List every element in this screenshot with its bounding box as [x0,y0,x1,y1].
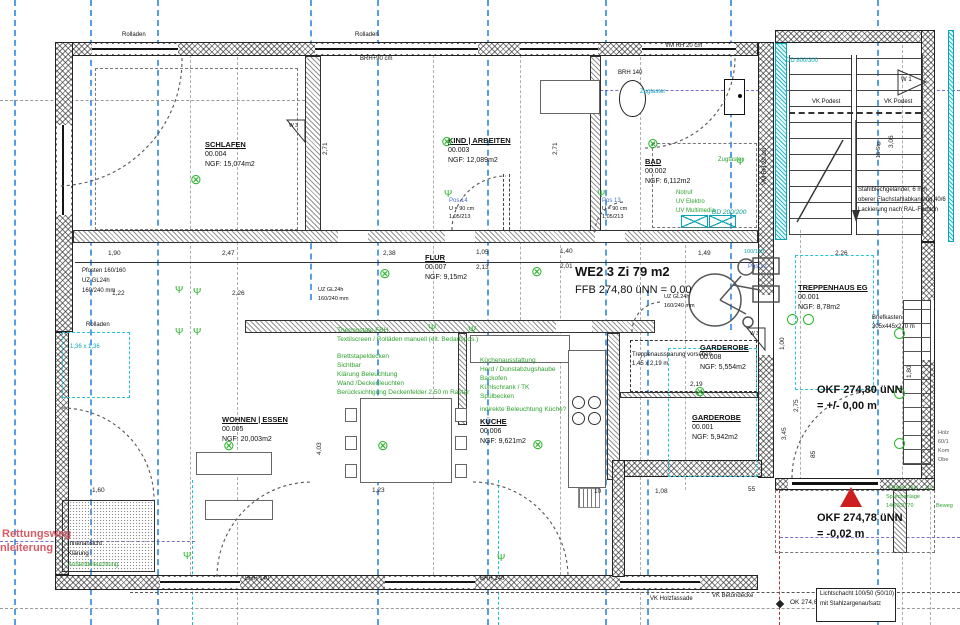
ceiling-lamp-icon: ⊗ [694,384,706,398]
desk [540,80,600,114]
note-decke5: Berücksichtigung Deckenfelder 2,50 m Ras… [337,388,469,397]
okf-lower-2: = -0,02 m [817,528,864,541]
dim: 2,38 [383,250,396,257]
ceiling-lamp-icon: ⊗ [531,264,543,278]
dim: 2,13 [476,264,489,271]
note-zugtaster-1: Zugtaster [640,88,665,97]
dimension-line [75,262,758,263]
hob-ring [588,396,601,409]
dining-table [360,398,452,483]
brh140-label: BRH 140 [618,70,642,77]
note-pfosten1: Pfosten 160/160 [82,268,126,275]
note-fbh2: Textilscreen / Rolläden manuell (elt. Be… [337,335,478,344]
room-num: 00.001 [798,294,819,302]
room-name-garderobe1: GARDEROBE [692,413,741,422]
room-ngf: NGF: 9,15m2 [425,274,467,282]
shaft-dim: 1,36 x 1,36 [70,344,100,351]
switch-icon: Ψ [497,554,505,564]
vanity [724,79,745,115]
chair [455,464,467,478]
dim: 1,08 [655,488,668,495]
door-pos-sub: 1,05/213 [602,214,623,221]
note-decke4: Wand /Deckenleuchten [337,379,404,388]
switch-icon: Ψ [175,286,183,296]
window [57,125,71,215]
dim: 1,22 [112,290,125,297]
note-holz4: Obe [938,457,948,464]
grid-axis [487,0,489,625]
note-beweg: Beweg [936,503,953,511]
note-kueche3: Backofen [480,374,507,383]
dim-vertical: 1,80 [906,365,913,378]
door-pos-tag: Pos 12 [748,264,767,271]
dim: 1,60 [92,487,105,494]
room-num: 00.005 [222,426,243,434]
room-num: 00.004 [205,151,226,159]
note-kueche4: Kühlschrank / TK [480,383,529,392]
switch-icon: Ψ [183,552,191,562]
note-aussparung1: Treppenaussparung vorsehen [632,352,712,359]
centerline [433,55,434,575]
rescue-line1: Rettungsweg [2,528,71,541]
switch-icon: Ψ [193,328,201,338]
door-gap [595,231,625,242]
chair [345,464,357,478]
note-uz1a: UZ GL24h [318,287,343,294]
room-num: 00.007 [425,264,446,272]
note-uz2a: UZ GL24h [664,294,689,301]
note-klingel1: Klingel- Tast [888,485,918,493]
switch-icon: Ψ [428,324,436,334]
door-pos-sub: 1,05/213 [449,214,470,221]
door-gap [338,231,368,242]
room-ngf: NGF: 5,942m2 [692,434,738,442]
door-leaf-dashed [509,174,510,230]
note-briefkasten2: 305x445x270 m [872,324,915,331]
hob-ring [588,412,601,425]
note-uv-multimedia: UV Multimedia [676,207,715,216]
dd-label: DD 800/300 [786,58,818,65]
dim: 1,23 [372,487,385,494]
unit-title: WE2 3 Zi 79 m2 [575,264,670,280]
vanity-dot [738,94,742,98]
fixture-dot [894,438,905,449]
note-gelaender2: oberer Flachstahlabkantung 40/6 [858,197,946,204]
dim-vertical: 4,03 [316,442,323,455]
rolladen-label: Rolladen [355,32,379,39]
room-ngf: NGF: 6,112m2 [645,178,690,186]
floor-plan: WE2 3 Zi 79 m2 FFB 274,80 üNN = 0,00 SCH… [0,0,960,625]
room-name-kind: KIND | ARBEITEN [448,136,511,145]
ceiling-lamp-icon: ⊗ [190,172,202,186]
note-uz2b: 160/240 mm [664,303,695,310]
ceiling-lamp-icon: ⊗ [377,438,389,452]
hob-ring [572,396,585,409]
dim-vertical: 3,06 [888,135,895,148]
window [92,44,178,54]
brh140-label: BRH 140 [245,576,269,583]
wall-flur-north [73,230,758,243]
wc [619,80,646,117]
dim: 55 [748,486,755,493]
door-leaf-dashed [503,174,504,230]
wall-flur-south [245,320,655,333]
room-ngf: NGF: 9,621m2 [480,438,526,446]
detail-outline [62,332,130,398]
dim-vertical: 1,00 [779,337,786,350]
note-notruf: Notruf [676,189,692,198]
dim-vertical: 2,71 [322,142,329,155]
note-klingel3: 140/330/70 [886,503,914,511]
stg-label: 15 Stg. [876,141,883,158]
okf-upper-2: = +/- 0,00 m [817,400,877,413]
note-decke3: Klärung Beleuchtung [337,370,397,379]
note-kueche6: indirekte Beleuchtung Küche? [480,405,566,414]
dim: 2,47 [222,250,235,257]
room-name-kueche: KÜCHE [480,417,507,426]
dim: 1,05 [476,249,489,256]
room-name-schlafen: SCHLAFEN [205,140,246,149]
w3-label: W 3 [289,123,298,129]
ngf-outline-schlafen [95,68,298,230]
wall-kueche-garderobe [607,333,620,480]
note-aussenbeleuchtung: Außenbeleuchtung [68,561,118,570]
level-marker-triangle [840,487,862,507]
vk-holzfassade-label: VK Holzfassade [650,596,693,603]
switch-icon: Ψ [175,328,183,338]
switch-icon: Ψ [444,190,452,200]
note-uv-elektro: UV Elektro [676,198,705,207]
chair [455,408,467,422]
window [385,577,475,588]
ceiling-lamp-icon: ⊗ [223,438,235,452]
door-swing [217,482,312,577]
note-decke1: Brettstapeldecken [337,352,389,361]
note-klingel2: Sprechanlage [886,494,920,502]
note-kueche1: Küchenausstattung [480,356,536,365]
ceiling-lamp-icon: ⊗ [647,136,659,150]
ceiling-lamp-icon: ⊗ [441,134,453,148]
rolladen-label: Rolladen [122,32,146,39]
note-pfosten3: 160/240 mm [82,288,115,295]
wall-far-right-insulated [948,30,954,242]
wall-stair-left-insulated [775,43,787,240]
note-kl: KL [926,486,933,494]
switch-icon: Ψ [468,326,476,336]
sideboard [196,452,272,475]
dim-vertical: 85 [810,451,817,458]
chair [345,408,357,422]
note-pfosten2: UZ GL24h [82,278,110,285]
note-aussparung2: 1,45 x 2,19 m [632,361,668,368]
note-briefkasten1: Briefkasten [872,315,902,322]
wall-schlafen-kind [305,56,321,232]
window [160,577,240,588]
door-pos-sub: U = 90 cm [449,206,474,213]
vk-podest-label: VK Podest [884,99,912,106]
chair [345,436,357,450]
room-num: 00.006 [480,428,501,436]
note-gelaender3: Lackierung nach RAL-Farbton [858,207,938,214]
note-kueche2: Herd / Dunstabzugshaube [480,365,556,374]
room-ngf: NGF: 5,554m2 [700,364,746,372]
stair-stringer [851,55,857,235]
door-gap [556,321,592,332]
vmrh-label: VM RH 20 cm [665,43,702,50]
note-fbh: Thermostate FBH [337,326,388,335]
room-name-wohnen: WOHNEN | ESSEN [222,415,288,424]
centerline [640,42,641,625]
note-holz3: Kom [938,448,949,455]
note-gelaender1: Stahlblechgeländer, 6 mm [858,187,927,194]
room-name-bad: BAD [645,157,661,166]
window [620,577,700,588]
vmrh-label-vertical: VM RH 20 cm [762,148,769,185]
rescue-line2: Anleiterung [0,542,53,555]
room-ngf: NGF: 12,089m2 [448,157,498,165]
w3-label: W 3 [750,331,759,337]
stair-cut-line [789,112,921,114]
switch-icon: Ψ [597,190,605,200]
centerline [520,55,521,320]
okf-lower: OKF 274,78 üNN [817,512,903,525]
level-point [776,600,784,608]
w1-label: W 1 [901,77,912,84]
lichtschacht-label2: mit Stahlzargenaufsatz [820,601,881,608]
dim: 2,26 [232,290,245,297]
okf-upper: OKF 274,80 üNN [817,384,903,397]
wall-stair-top [775,30,935,43]
dim: 1,90 [108,250,121,257]
room-num: 00.002 [645,168,666,176]
vk-betondecke-label: VK Betondecke [712,593,753,600]
lichtschacht-label1: Lichtschacht 100/50 (50/10) [820,591,894,598]
dim: 2,26 [835,250,848,257]
wall-right-apartment [758,42,774,478]
dim: 10 [594,488,601,495]
door-gap [445,231,475,242]
door-swing [62,408,154,500]
switch-icon: Ψ [193,288,201,298]
note-holz1: Holz [938,430,949,437]
door-gap [759,295,773,355]
brh90-label: BRH+90 cm [360,56,393,63]
dim-vertical: 2,71 [552,142,559,155]
entrance-door-leaf [792,482,878,485]
room-name-flur: FLUR [425,253,445,262]
wall-entry-v [612,460,625,577]
dim-vertical: 2,75 [793,399,800,412]
window [520,44,598,54]
grid-axis-cyan [192,480,193,625]
ceiling-lamp-icon: ⊗ [532,437,544,451]
dim: 1,40 [560,248,573,255]
grid-axis [605,0,607,625]
detail-outline [795,255,874,390]
lowboard [205,500,273,520]
dim: 2,01 [560,263,573,270]
bd-label: BD 200/200 [712,209,746,217]
grid-axis [377,0,379,625]
room-name-treppenhaus: TREPPENHAUS EG [798,283,868,292]
window [315,44,478,54]
chair [455,436,467,450]
note-decke2: Sichtbar [337,361,361,370]
note-uz1b: 160/240 mm [318,296,349,303]
room-name-garderobe8: GARDEROBE [700,343,749,352]
room-ngf: NGF: 15,074m2 [205,161,255,169]
note-kueche5: Spülbecken [480,392,514,401]
door-pos-sub: U = 90 cm [602,206,627,213]
note-innenansicht: Innenansicht [68,541,102,548]
room-num: 00.001 [692,424,713,432]
switch-icon: Ψ [736,158,744,168]
vk-podest-label: VK Podest [812,99,840,106]
brh140-label: BRH 140 [480,576,504,583]
room-ngf: NGF: 8,78m2 [798,304,840,312]
hob-ring [572,412,585,425]
centerline [560,230,561,575]
dim-100: 100/100 [744,249,764,256]
note-klaerung: Klärung [68,551,89,558]
note-holz2: 60/1 [938,439,949,446]
dim: 1,49 [698,250,711,257]
ceiling-lamp-icon: ⊗ [379,266,391,280]
dim-vertical: 3,45 [781,427,788,440]
rolladen-label: Rolladen [86,322,110,329]
